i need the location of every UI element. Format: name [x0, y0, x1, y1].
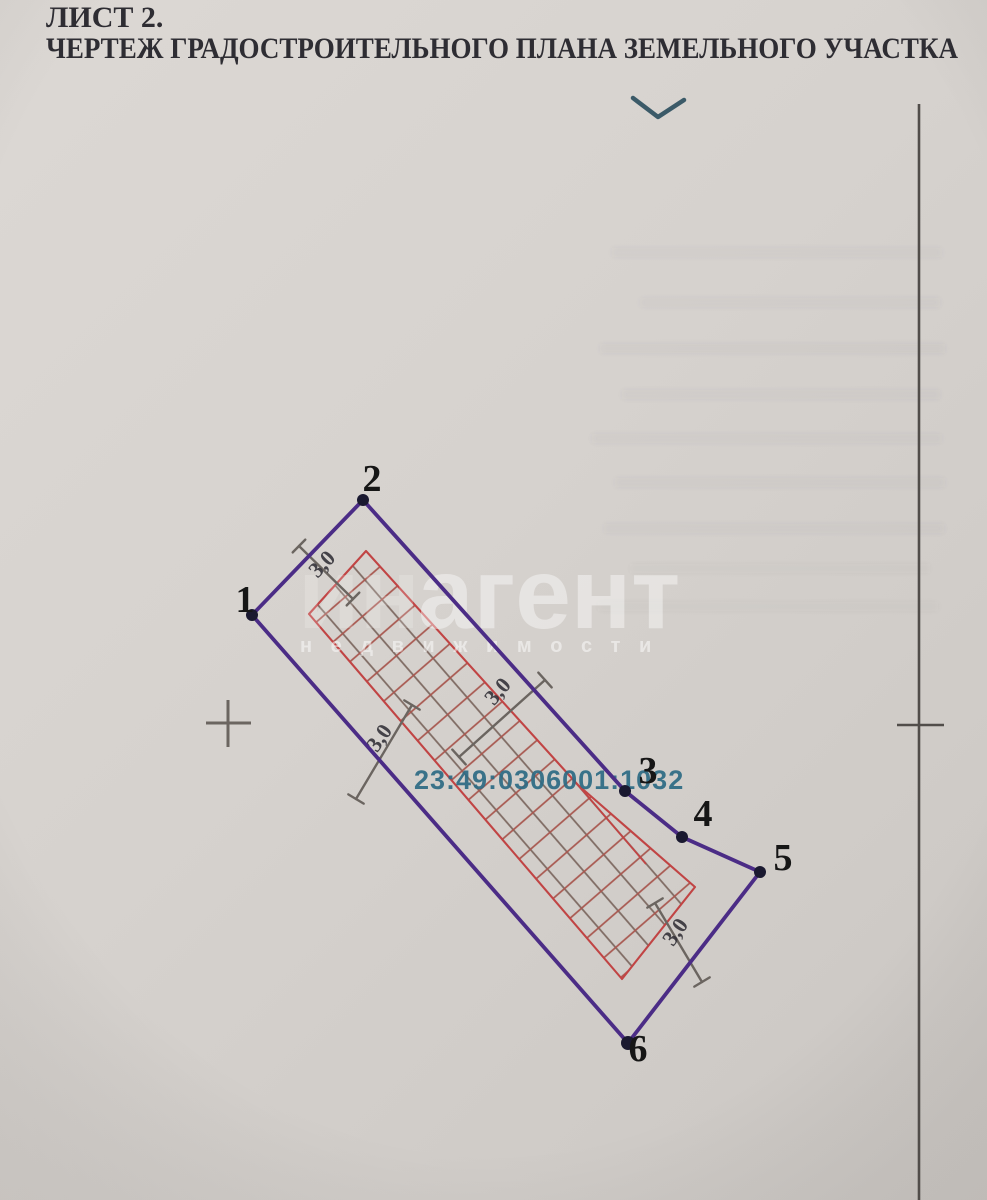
page-title: ЧЕРТЕЖ ГРАДОСТРОИТЕЛЬНОГО ПЛАНА ЗЕМЕЛЬНО…: [46, 32, 958, 65]
corner-label-5: 5: [774, 837, 793, 879]
corner-dot-3: [619, 785, 631, 797]
watermark-main: агент: [418, 538, 680, 650]
corner-label-6: 6: [629, 1028, 648, 1070]
corner-label-1: 1: [236, 579, 255, 621]
corner-label-3: 3: [639, 750, 658, 792]
corner-dot-4: [676, 831, 688, 843]
sheet-label: ЛИСТ 2.: [46, 1, 163, 34]
corner-label-4: 4: [694, 793, 713, 835]
corner-dot-5: [754, 866, 766, 878]
watermark-subtitle: н е д в и ж и м о с т и: [300, 635, 658, 657]
scanned-plan-page: ин агент н е д в и ж и м о с т и 23:49:0…: [0, 0, 987, 1200]
corner-label-2: 2: [363, 458, 382, 500]
